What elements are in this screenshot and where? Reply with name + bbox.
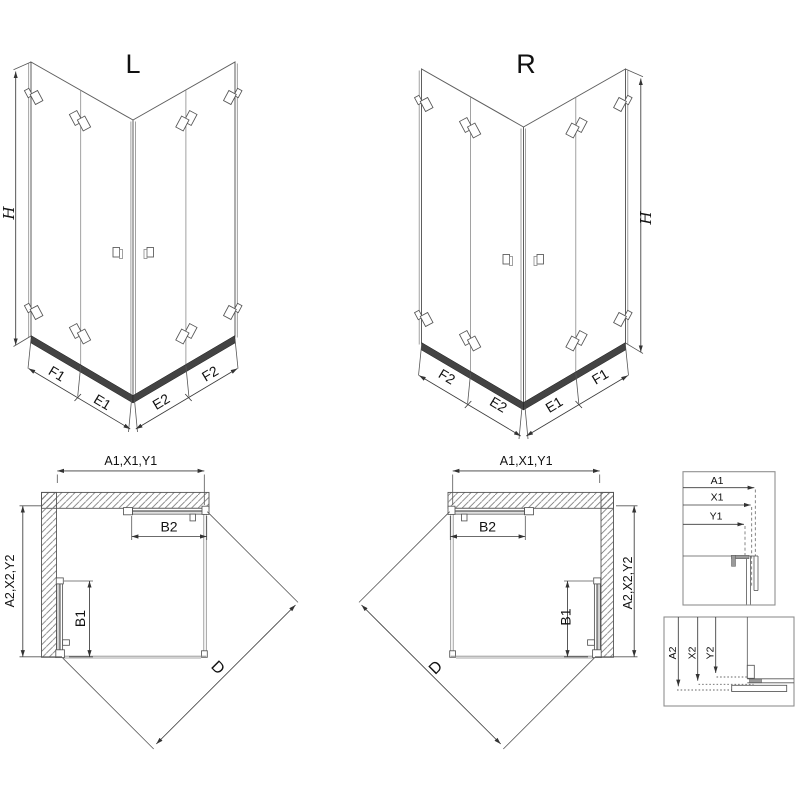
detail-box-top-frame [683,472,775,605]
plan-depth-dim-left: A2,X2,Y2 [3,555,17,608]
detail-label-x2: X2 [687,646,699,659]
door-width-b2-right: B2 [479,519,496,535]
wall-band-top-left-plan [42,492,210,508]
plan-geometry-right [359,471,638,749]
plan-width-dim-left: A1,X1,Y1 [104,454,157,468]
variant-title-right: R [516,49,536,79]
wall-band-top-right-plan [448,492,614,508]
height-dim-label-left: H [0,206,18,221]
door-width-b1-right: B1 [558,608,574,625]
segment-label-f1-left: F1 [46,362,68,384]
door-width-b2-left: B2 [160,519,177,535]
detail-box-bottom-frame [664,617,794,706]
detail-label-y1: Y1 [710,510,723,522]
plan-geometry-left [20,471,299,749]
segment-label-f2-left: F2 [199,362,221,384]
segment-label-e1-left: E1 [91,391,114,414]
plan-wall-bands [42,492,614,657]
detail-box-depth-refs: A2 X2 Y2 [664,617,794,706]
shower-enclosure-diagram: L H F1 E1 E2 F2 R H F2 E2 E1 F1 A1,X1,Y1… [0,0,800,800]
technical-drawing-page: L H F1 E1 E2 F2 R H F2 E2 E1 F1 A1,X1,Y1… [0,0,800,800]
detail-box-width-refs: A1 X1 Y1 [683,472,775,605]
height-dim-label-right: H [637,211,655,226]
door-profile-bar-detail [732,685,787,691]
wall-profile-bracket-bottom-detail [750,679,762,683]
door-width-b1-left: B1 [72,610,88,627]
diagonal-dim-right: D [426,658,446,678]
glass-profile-tab-detail [747,665,754,678]
wall-band-side-right-plan [601,492,614,657]
variant-title-left: L [125,49,140,79]
detail-label-a2: A2 [667,646,679,659]
wall-band-side-left-plan [42,492,57,657]
detail-label-x1: X1 [711,491,724,503]
diagonal-dim-left: D [207,658,227,678]
detail-label-y2: Y2 [705,646,717,659]
plan-depth-dim-right: A2,X2,Y2 [621,557,635,610]
detail-label-a1: A1 [711,475,724,487]
iso-view-L: L H F1 E1 E2 F2 [0,49,242,432]
plan-width-dim-right: A1,X1,Y1 [500,454,553,468]
wall-profile-bracket-stub-detail [732,555,736,566]
iso-view-R: R H F2 E2 E1 F1 [415,49,655,439]
